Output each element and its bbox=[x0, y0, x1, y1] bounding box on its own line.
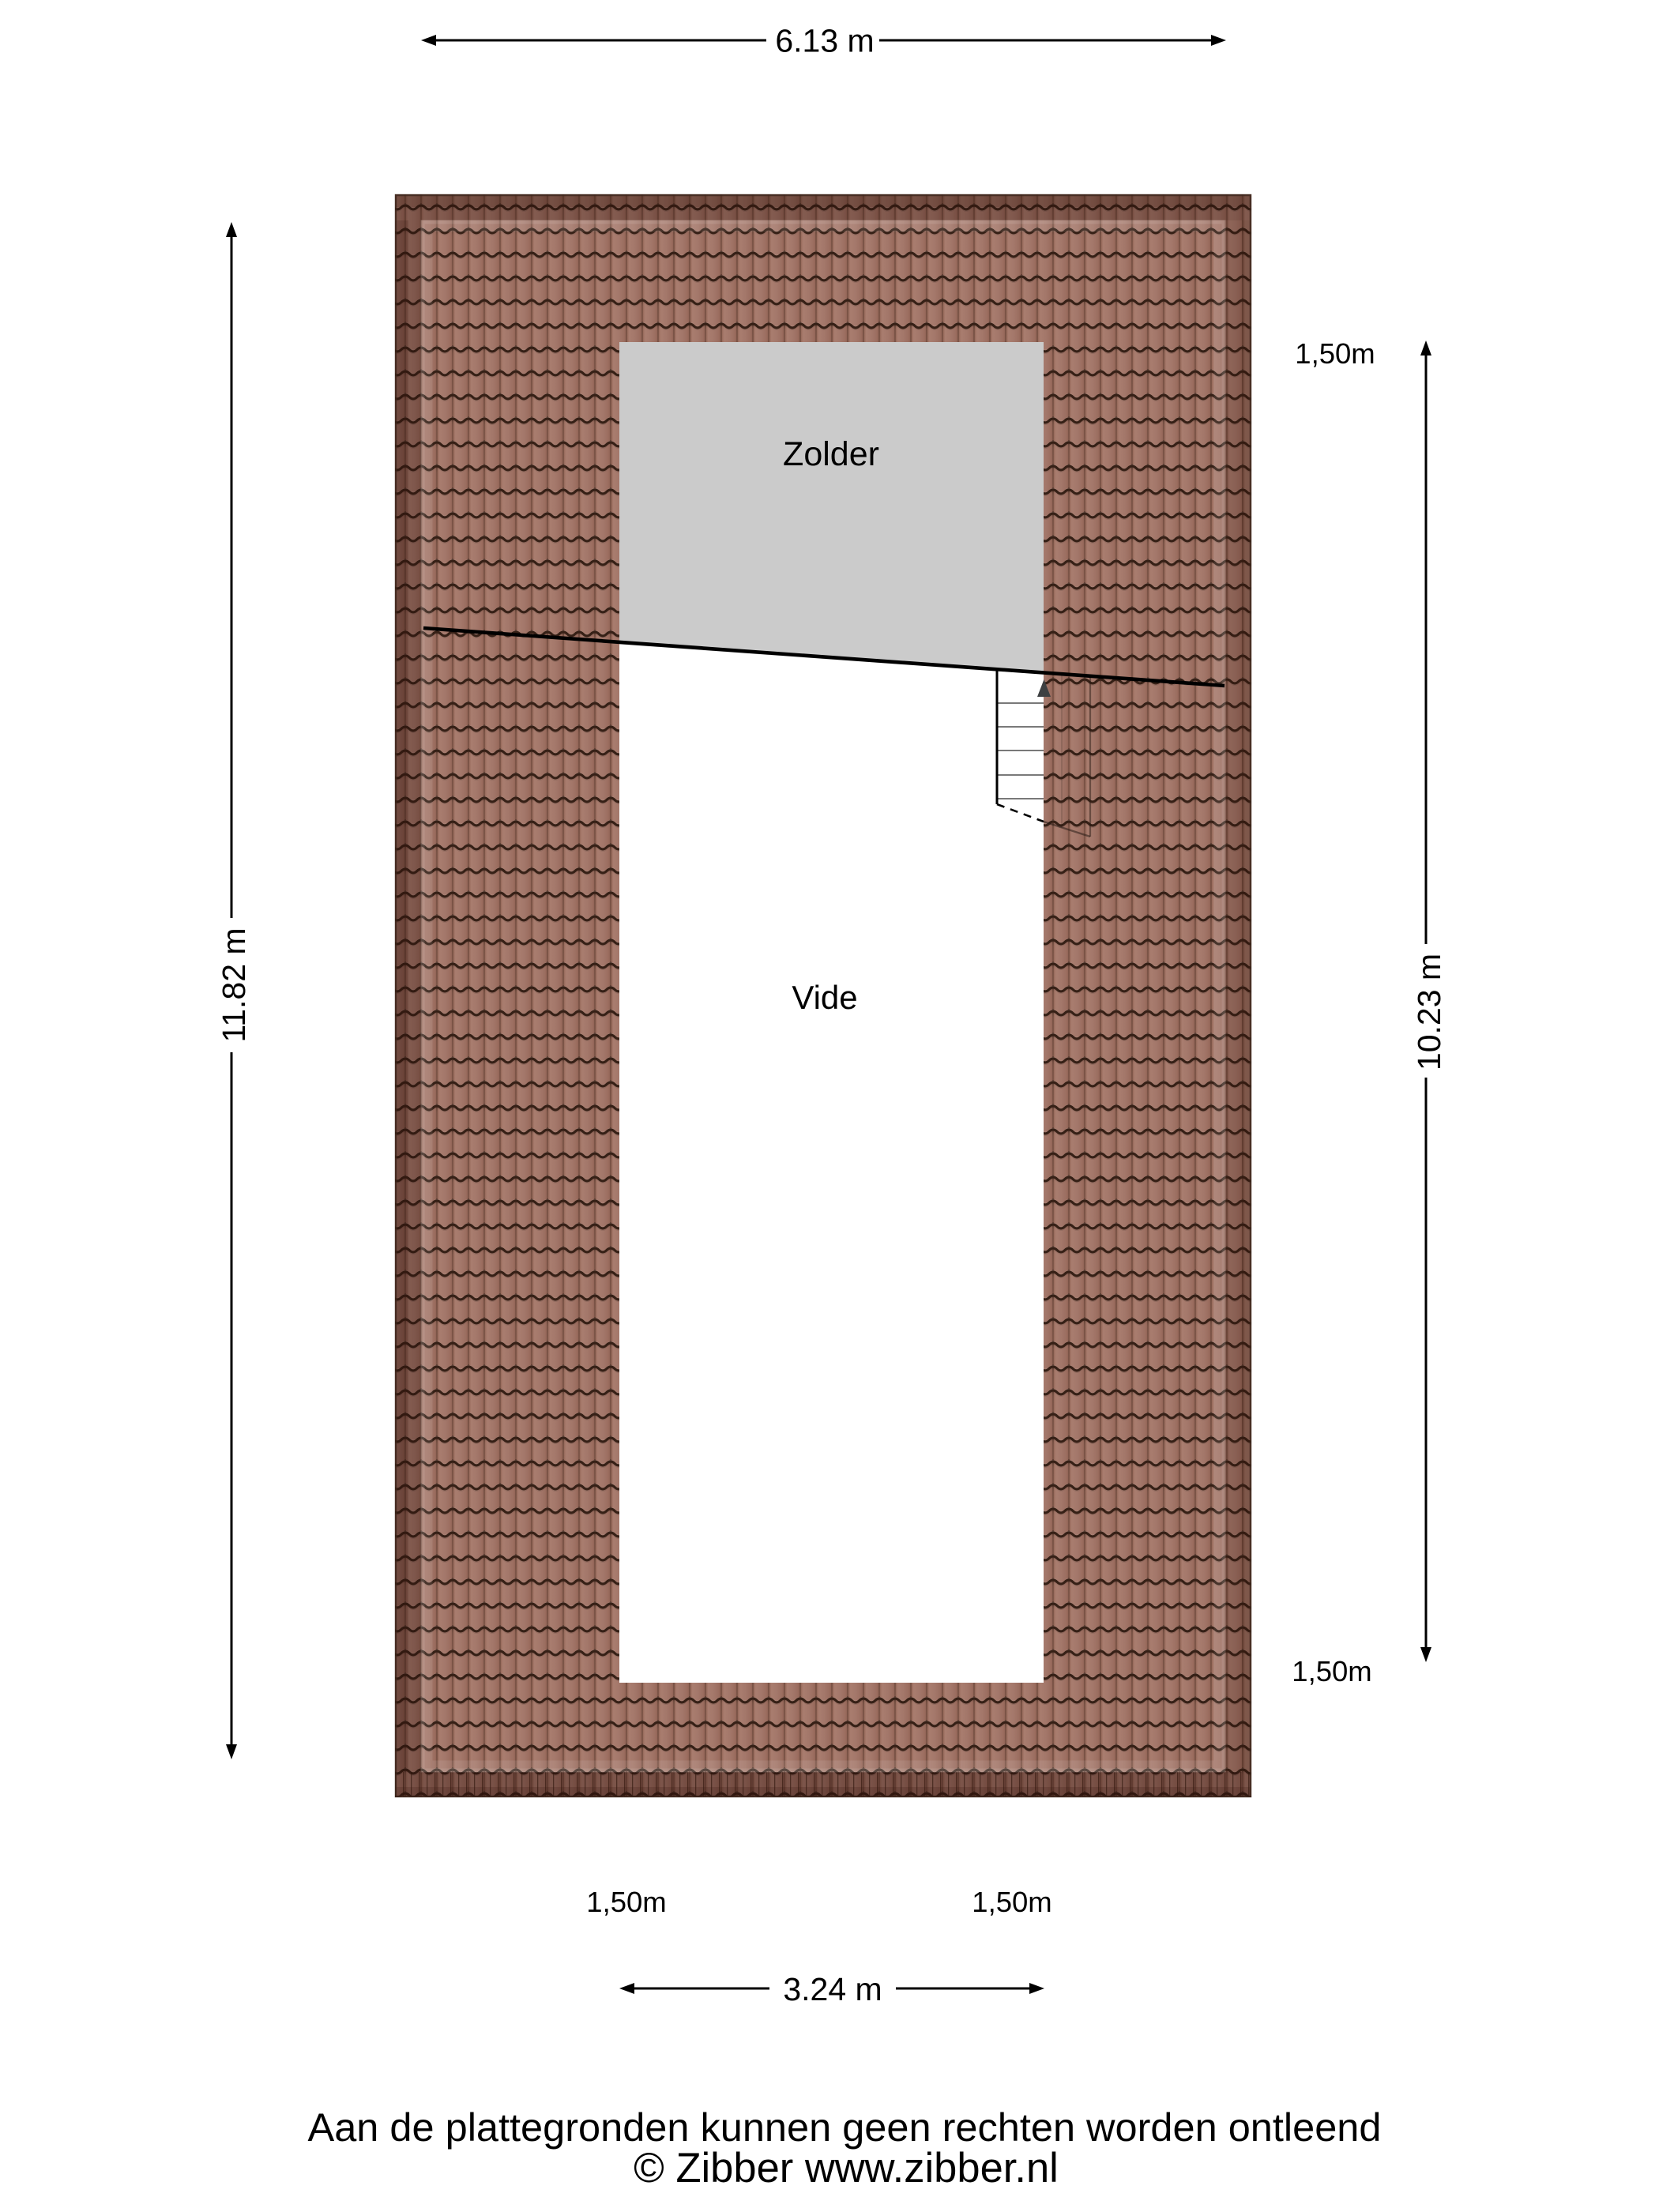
svg-text:© Zibber www.zibber.nl: © Zibber www.zibber.nl bbox=[634, 2145, 1059, 2191]
svg-text:1,50m: 1,50m bbox=[972, 1886, 1051, 1918]
svg-text:Aan de plattegronden kunnen ge: Aan de plattegronden kunnen geen rechten… bbox=[308, 2105, 1382, 2150]
svg-text:10.23 m: 10.23 m bbox=[1411, 954, 1447, 1070]
svg-text:Zolder: Zolder bbox=[783, 435, 879, 473]
svg-text:11.82 m: 11.82 m bbox=[216, 927, 252, 1042]
svg-text:1,50m: 1,50m bbox=[586, 1886, 666, 1918]
svg-text:6.13 m: 6.13 m bbox=[775, 23, 874, 59]
svg-text:1,50m: 1,50m bbox=[1295, 337, 1375, 370]
svg-text:Vide: Vide bbox=[792, 979, 857, 1016]
svg-text:3.24 m: 3.24 m bbox=[783, 1971, 882, 2007]
svg-text:1,50m: 1,50m bbox=[1292, 1655, 1371, 1687]
